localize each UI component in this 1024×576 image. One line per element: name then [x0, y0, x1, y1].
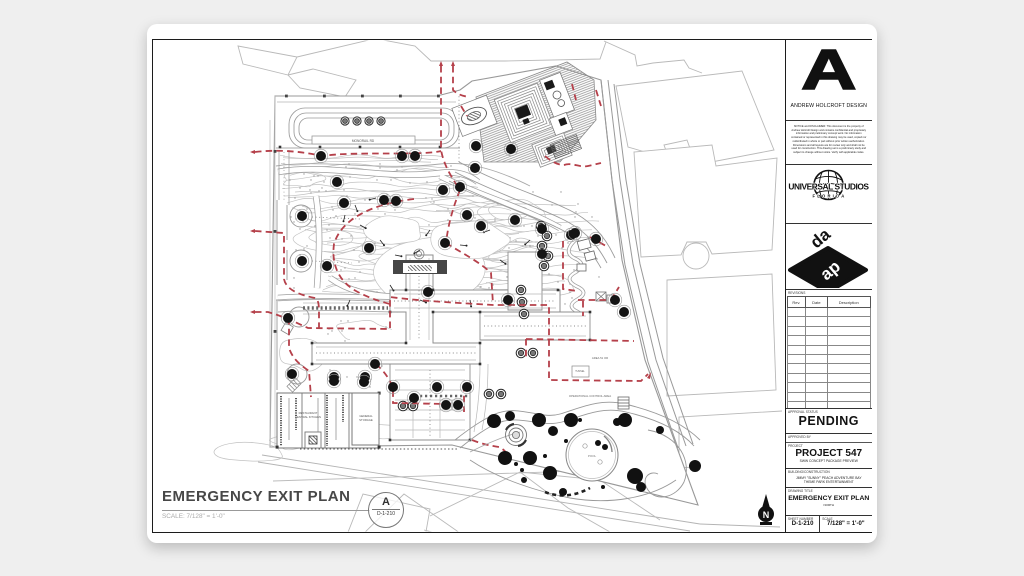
svg-text:FLORIDA: FLORIDA — [813, 194, 847, 199]
svg-text:UNIVERSAL STUDIOS: UNIVERSAL STUDIOS — [789, 182, 870, 192]
